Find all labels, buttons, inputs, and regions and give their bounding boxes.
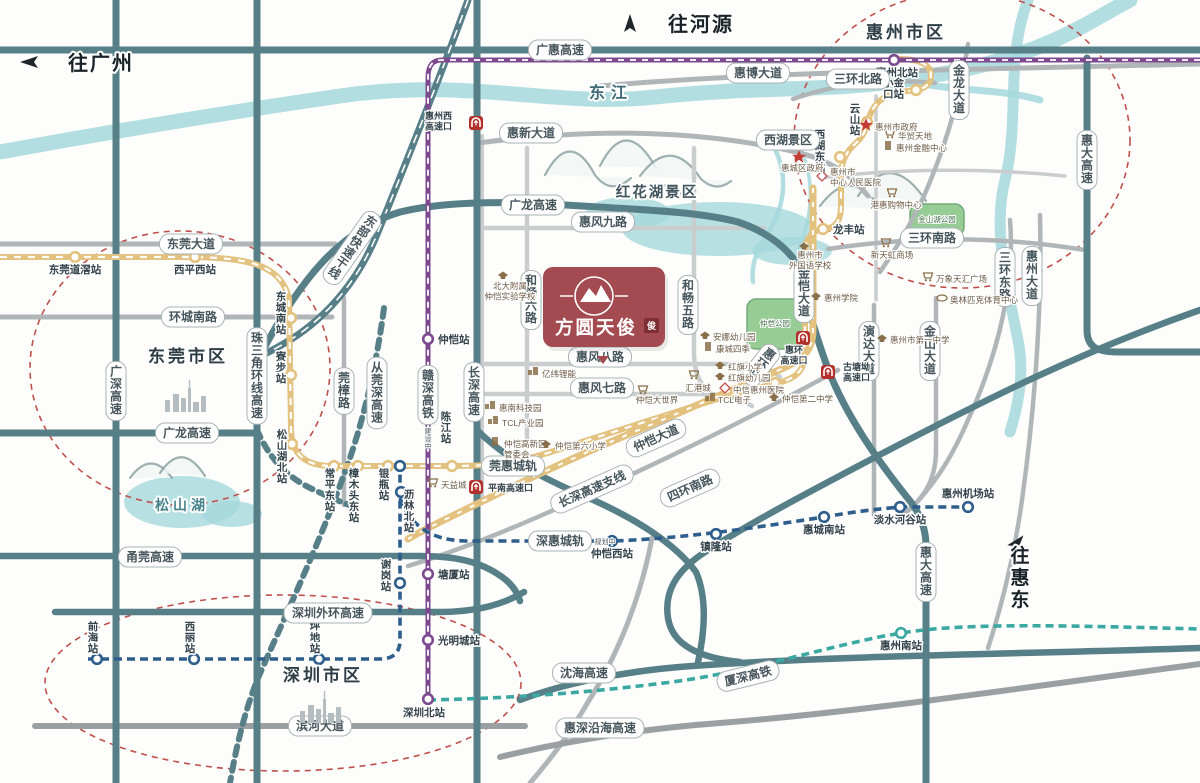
station-仲恺站: 仲恺站 — [423, 333, 470, 346]
text-方圆天俊: 方圆天俊 — [555, 317, 637, 338]
school-icon-base — [772, 398, 776, 401]
shopping-icon-wheel — [644, 392, 646, 394]
station-dot — [889, 55, 899, 65]
text-港惠购物中心: 港惠购物中心 — [870, 200, 922, 210]
text-外国语学校: 外国语学校 — [789, 261, 832, 271]
text-站: 站 — [441, 432, 452, 445]
skyline-building — [300, 711, 305, 723]
road — [898, 220, 1011, 520]
mountain-icon — [640, 156, 731, 187]
text-速: 速 — [920, 582, 932, 597]
road-label-金龙大道: 金龙大道 — [949, 61, 969, 120]
text-中心人民医院: 中心人民医院 — [830, 178, 882, 188]
road-label-甬莞高速: 甬莞高速 — [119, 547, 182, 567]
direction-往河源: 往河源 — [624, 12, 734, 36]
road-label-莞樟路: 莞樟路 — [334, 368, 354, 415]
text-红花湖景区: 红花湖景区 — [616, 183, 699, 201]
poi-万象天汇广场: 万象天汇广场 — [924, 273, 988, 284]
road — [520, 648, 1200, 700]
station-dot — [711, 529, 721, 539]
text-管委会: 管委会 — [504, 450, 530, 460]
city-skyline-icon — [165, 380, 206, 412]
station-银瓶站: 银瓶站 — [379, 461, 393, 502]
text-惠深沿海高速: 惠深沿海高速 — [564, 720, 636, 735]
station-dot — [395, 578, 405, 588]
skyline-building — [336, 707, 341, 723]
station-dot — [189, 654, 199, 664]
text-中: 中 — [425, 442, 432, 451]
factory-icon — [528, 370, 532, 375]
text-站: 站 — [349, 511, 360, 524]
station-dot — [70, 252, 80, 262]
poi-安娜幼儿园: 安娜幼儿园 — [700, 332, 756, 343]
text-惠州市区: 惠州市区 — [866, 22, 946, 42]
text-站: 站 — [276, 372, 287, 385]
road-label-环城南路: 环城南路 — [162, 307, 225, 327]
text-站: 站 — [381, 580, 392, 593]
direction-arrow-icon — [624, 14, 636, 32]
text-淡水河谷站: 淡水河谷站 — [874, 513, 927, 526]
road — [1087, 58, 1200, 352]
text-红旗幼儿园: 红旗幼儿园 — [728, 373, 771, 383]
road-label-长深高速: 长深高速 — [464, 363, 484, 422]
text-高速口: 高速口 — [425, 121, 452, 132]
text-惠新大道: 惠新大道 — [507, 125, 555, 140]
text-松山湖: 松山湖 — [155, 497, 209, 513]
text-站: 站 — [310, 642, 321, 655]
text-深圳北站: 深圳北站 — [403, 706, 445, 719]
station-谢岗站: 谢岗站 — [381, 558, 405, 593]
text-道: 道 — [924, 361, 936, 376]
factory-icon — [705, 396, 709, 401]
text-往: 往 — [1010, 544, 1029, 567]
poi-康城四季: 康城四季 — [705, 342, 751, 354]
text-仲恺西站: 仲恺西站 — [591, 547, 633, 560]
station-dot — [911, 85, 921, 95]
text-惠风九路: 惠风九路 — [579, 214, 628, 229]
road-label-沈海高速: 沈海高速 — [553, 663, 616, 683]
station-dot — [314, 654, 324, 664]
station-dot — [447, 461, 457, 471]
text-道: 道 — [1026, 286, 1038, 301]
text-道: 道 — [953, 100, 965, 115]
road-label-惠新大道: 惠新大道 — [500, 123, 563, 143]
station-龙丰站: 龙丰站 — [818, 223, 865, 236]
shopping-icon-wheel — [887, 136, 889, 138]
text-惠博大道: 惠博大道 — [734, 65, 782, 80]
text-深圳市区: 深圳市区 — [283, 665, 363, 685]
text-仲恺实验学校: 仲恺实验学校 — [484, 292, 536, 302]
road-label-广惠高速: 广惠高速 — [529, 40, 592, 60]
text-惠州机场站: 惠州机场站 — [942, 487, 995, 500]
text-东莞道滘站: 东莞道滘站 — [49, 263, 102, 276]
station-dot — [286, 313, 296, 323]
poi-奥林匹克体育中心: 奥林匹克体育中心 — [937, 295, 1019, 305]
road-label-惠深沿海高速: 惠深沿海高速 — [556, 718, 644, 738]
road-label-深圳外环高速: 深圳外环高速 — [284, 603, 372, 623]
station-陈江站: 陈江站 — [441, 410, 457, 471]
text-康城四季: 康城四季 — [716, 344, 751, 354]
text-天益城: 天益城 — [441, 480, 467, 490]
text-规划中: 规划中 — [595, 537, 616, 546]
text-惠城区政府: 惠城区政府 — [781, 163, 824, 173]
station-dot — [963, 502, 973, 512]
text-惠州市: 惠州市 — [797, 250, 823, 260]
school-icon-base — [718, 377, 722, 380]
text-站: 站 — [88, 642, 99, 655]
text-口站: 口站 — [883, 88, 904, 101]
text-站: 站 — [850, 124, 861, 137]
station-dot — [286, 370, 296, 380]
poi-惠南科技园: 惠南科技园 — [485, 401, 542, 413]
text-汇港城: 汇港城 — [685, 383, 711, 393]
text-惠州南站: 惠州南站 — [880, 639, 922, 652]
station-惠州机场站: 惠州机场站 — [942, 487, 995, 512]
text-甬莞高速: 甬莞高速 — [126, 549, 174, 564]
shopping-icon-wheel — [695, 377, 697, 379]
station-dot — [92, 654, 102, 664]
pois: 北大附属仲恺实验学校亿纬锂能惠南科技园TCL产业园仲恺高新区管委会仲恺第六小学天… — [429, 118, 1019, 490]
text-建: 建 — [425, 427, 432, 436]
text-高速口: 高速口 — [843, 372, 870, 383]
text-东: 东 — [1010, 588, 1029, 611]
station-junction — [395, 461, 405, 471]
mountain-icon — [600, 140, 656, 168]
text-北大附属: 北大附属 — [493, 281, 527, 291]
shopping-icon-wheel — [434, 485, 436, 487]
shopping-icon-wheel — [925, 279, 927, 281]
text-沈海高速: 沈海高速 — [560, 665, 608, 680]
text-安娜幼儿园: 安娜幼儿园 — [713, 332, 756, 342]
school-icon-base — [501, 276, 505, 279]
text-东莞大道: 东莞大道 — [167, 236, 215, 251]
text-万象天汇广场: 万象天汇广场 — [936, 274, 987, 284]
skyline-building — [316, 709, 321, 723]
road-label-四环南路: 四环南路 — [657, 466, 723, 510]
text-东莞市区: 东莞市区 — [148, 346, 228, 366]
road-label-西湖景区: 西湖景区 — [757, 130, 820, 150]
station-dot — [395, 461, 405, 471]
text-往广州: 往广州 — [68, 51, 134, 75]
skyline-building — [173, 394, 179, 412]
text-TCL电子: TCL电子 — [718, 395, 752, 405]
text-设: 设 — [425, 434, 432, 443]
station-dot — [896, 628, 906, 638]
shopping-icon-wheel — [889, 195, 891, 197]
road-label-惠大高速: 惠大高速 — [916, 543, 936, 602]
text-速: 速 — [371, 409, 383, 424]
skyline-building — [193, 402, 199, 412]
factory-icon — [485, 404, 489, 409]
text-仲恺公园: 仲恺公园 — [760, 318, 790, 328]
text-TCL产业园: TCL产业园 — [502, 418, 544, 428]
text-路: 路 — [682, 315, 695, 330]
road-label-惠博大道: 惠博大道 — [727, 63, 790, 83]
skyline-building — [181, 398, 186, 412]
station-dot — [423, 334, 433, 344]
poi-惠州学院: 惠州学院 — [811, 293, 859, 304]
station-dot — [835, 152, 845, 162]
poi-亿纬锂能: 亿纬锂能 — [528, 367, 577, 379]
skyline-building — [201, 396, 206, 412]
text-广龙高速: 广龙高速 — [163, 425, 211, 440]
shopping-icon-wheel — [640, 392, 642, 394]
text-古塘坳: 古塘坳 — [843, 361, 870, 372]
road-label-三环南路: 三环南路 — [901, 228, 964, 248]
school-icon-base — [814, 297, 818, 300]
text-平南高速口: 平南高速口 — [488, 482, 533, 493]
station-dot — [895, 502, 905, 512]
text-道: 道 — [798, 303, 810, 318]
text-惠南科技园: 惠南科技园 — [499, 403, 542, 413]
text-广龙高速: 广龙高速 — [509, 197, 557, 212]
direction-往惠东: 往惠东 — [1007, 531, 1029, 611]
text-惠州学院: 惠州学院 — [824, 293, 859, 303]
factory-icon — [488, 419, 492, 424]
text-广惠高速: 广惠高速 — [536, 42, 584, 57]
text-惠州市第一中学: 惠州市第一中学 — [890, 335, 950, 345]
stations: 东莞道滘站西平西站东城南站寮步站松山湖北站常平东站樟木头东站银瓶站陈江站龙丰站西… — [49, 55, 995, 719]
poi-红旗幼儿园: 红旗幼儿园 — [715, 373, 771, 384]
direction-往广州: 往广州 — [20, 51, 134, 75]
text-惠州西: 惠州西 — [425, 110, 452, 121]
station-dot — [423, 635, 433, 645]
location-map: 金山湖公园仲恺公园东莞道滘站西平西站东城南站寮步站松山湖北站常平东站樟木头东站银… — [0, 0, 1200, 783]
shopping-icon — [924, 273, 933, 278]
text-仲恺站: 仲恺站 — [438, 333, 470, 346]
text-中信惠州医院: 中信惠州医院 — [733, 385, 785, 395]
station-光明城站: 光明城站 — [423, 634, 480, 647]
text-深惠城轨: 深惠城轨 — [536, 533, 584, 548]
shopping-icon-wheel — [887, 245, 889, 247]
text-惠州市政府: 惠州市政府 — [875, 122, 918, 132]
station-dot — [287, 439, 297, 449]
skyline-building — [323, 699, 326, 723]
text-路: 路 — [338, 395, 351, 410]
text-俊: 俊 — [647, 320, 656, 331]
text-速: 速 — [110, 401, 122, 416]
text-镇隆站: 镇隆站 — [700, 540, 732, 553]
road-label-金山大道: 金山大道 — [920, 322, 940, 381]
road-label-和畅五路: 和畅五路 — [678, 276, 698, 335]
building-icon — [885, 141, 891, 150]
text-西平西站: 西平西站 — [174, 263, 216, 276]
station-镇隆站: 镇隆站 — [700, 529, 732, 553]
text-速: 速 — [251, 405, 263, 420]
text-新天虹商场: 新天虹商场 — [871, 250, 914, 260]
poi-红旗小学: 红旗小学 — [715, 362, 763, 373]
shopping-icon-wheel — [691, 377, 693, 379]
building-icon — [492, 437, 498, 446]
road-label-东莞大道: 东莞大道 — [160, 234, 223, 254]
text-速: 速 — [1081, 170, 1093, 185]
text-惠城南站: 惠城南站 — [803, 523, 845, 536]
school-icon-base — [544, 445, 548, 448]
factory-icon — [490, 401, 495, 409]
text-塘厦站: 塘厦站 — [438, 568, 470, 581]
text-龙丰站: 龙丰站 — [832, 223, 865, 236]
text-高速口: 高速口 — [780, 355, 807, 366]
station-dot — [818, 224, 828, 234]
text-站: 站 — [404, 521, 415, 534]
text-三环北路: 三环北路 — [834, 71, 883, 86]
factory-icon — [493, 416, 498, 424]
poi-惠州金融中心: 惠州金融中心 — [885, 141, 948, 153]
station-塘厦站: 塘厦站 — [423, 568, 470, 581]
factory-icon — [710, 393, 715, 401]
text-惠风七路: 惠风七路 — [578, 380, 627, 395]
direction-arrow-icon — [20, 56, 38, 68]
text-华贸天地: 华贸天地 — [898, 131, 933, 141]
road-label-广龙高速: 广龙高速 — [502, 195, 565, 215]
skyline-building — [188, 388, 191, 412]
stadium-icon — [937, 295, 947, 301]
poi-仲恺大世界: 仲恺大世界 — [636, 386, 679, 405]
text-三环南路: 三环南路 — [908, 230, 957, 245]
skyline-building — [328, 713, 334, 723]
road-label-惠州大道: 惠州大道 — [1022, 247, 1042, 306]
text-站: 站 — [325, 500, 336, 513]
road-label-金恺大道: 金恺大道 — [794, 264, 814, 323]
road-label-惠风七路: 惠风七路 — [571, 378, 634, 398]
shopping-icon-wheel — [883, 245, 885, 247]
text-站: 站 — [276, 323, 287, 336]
station-云山站: 云山站 — [850, 103, 872, 137]
school-icon-base — [880, 339, 884, 342]
text-惠环: 惠环 — [785, 344, 803, 355]
text-红旗小学: 红旗小学 — [728, 362, 763, 372]
shopping-icon-wheel — [430, 485, 432, 487]
shopping-icon — [639, 386, 648, 391]
road-label-赣深高铁: 赣深高铁建设中 — [418, 366, 438, 451]
school-icon-base — [703, 336, 707, 339]
road-label-三环北路: 三环北路 — [827, 69, 890, 89]
station-樟木头东站: 樟木头东站 — [348, 461, 363, 524]
text-东江: 东江 — [589, 83, 633, 102]
text-金山湖公园: 金山湖公园 — [918, 214, 956, 224]
text-站: 站 — [277, 472, 288, 485]
factory-icon — [533, 367, 538, 375]
lake — [202, 501, 262, 527]
text-仲恺第二中学: 仲恺第二中学 — [782, 394, 834, 404]
text-西湖景区: 西湖景区 — [764, 132, 812, 147]
road-label-从莞深高速: 从莞深高速 — [367, 357, 387, 429]
mountain-icon — [160, 457, 205, 476]
shopping-icon-wheel — [929, 279, 931, 281]
road-label-惠大高速: 惠大高速 — [1077, 131, 1097, 190]
skyline-building — [165, 400, 170, 412]
station-深圳北站: 深圳北站 — [403, 694, 445, 719]
station-dot — [423, 694, 433, 704]
station-dot — [819, 512, 829, 522]
shopping-icon-wheel — [891, 136, 893, 138]
poi-天益城: 天益城 — [429, 479, 468, 490]
text-速: 速 — [468, 402, 480, 417]
road-label-广深高速: 广深高速 — [106, 362, 126, 421]
text-深圳外环高速: 深圳外环高速 — [292, 605, 364, 620]
road-label-广龙高速: 广龙高速 — [156, 423, 219, 443]
text-仲恺高新区: 仲恺高新区 — [504, 439, 547, 449]
text-惠州金融中心: 惠州金融中心 — [896, 143, 948, 153]
project-logo-方圆天俊: 方圆天俊俊 — [543, 267, 668, 364]
text-惠州市: 惠州市 — [830, 167, 856, 177]
text-亿纬锂能: 亿纬锂能 — [542, 369, 577, 379]
text-铁: 铁 — [422, 405, 434, 420]
interchange-icon-平南高速口: 平南高速口 — [469, 480, 533, 494]
shopping-icon-wheel — [893, 195, 895, 197]
text-环城南路: 环城南路 — [169, 309, 218, 324]
text-仲恺大世界: 仲恺大世界 — [636, 395, 679, 405]
text-光明城站: 光明城站 — [437, 634, 480, 647]
text-仲恺第六小学: 仲恺第六小学 — [555, 441, 607, 451]
text-莞惠城轨: 莞惠城轨 — [489, 458, 537, 473]
text-惠: 惠 — [1010, 567, 1029, 589]
skyline-building — [308, 705, 314, 723]
road-label-惠风九路: 惠风九路 — [572, 212, 635, 232]
text-站: 站 — [185, 642, 196, 655]
school-icon-base — [718, 366, 722, 369]
road-label-珠三角环线高速: 珠三角环线高速 — [247, 328, 267, 425]
text-站: 站 — [379, 489, 390, 502]
text-往河源: 往河源 — [668, 12, 734, 36]
station-dot — [423, 569, 433, 579]
text-路: 路 — [525, 310, 538, 325]
building-icon — [705, 342, 711, 351]
text-奥林匹克体育中心: 奥林匹克体育中心 — [950, 295, 1019, 305]
map-svg: 金山湖公园仲恺公园东莞道滘站西平西站东城南站寮步站松山湖北站常平东站樟木头东站银… — [0, 0, 1200, 783]
poi-惠州市第一中学: 惠州市第一中学 — [877, 335, 950, 346]
poi-TCL产业园: TCL产业园 — [488, 416, 544, 428]
